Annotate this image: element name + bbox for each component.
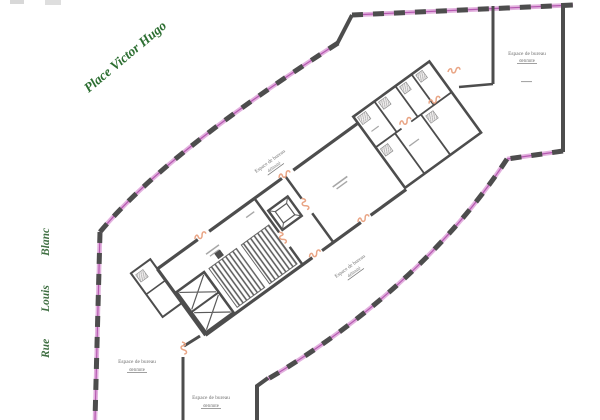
central-core bbox=[131, 58, 483, 350]
plain-walls bbox=[183, 3, 563, 420]
street-word-rue: Rue bbox=[40, 339, 52, 359]
column bbox=[214, 249, 224, 259]
wall-interior-topright-foot bbox=[459, 84, 493, 87]
door-opening-squiggles-global bbox=[179, 66, 460, 355]
sanitary-block bbox=[353, 61, 481, 187]
core-left-rooms bbox=[131, 259, 182, 317]
street-label-rue-louis-blanc: Rue Louis Blanc bbox=[40, 228, 52, 359]
office-label-bottom-left: Espace de bureau délimité bbox=[118, 359, 156, 373]
floorplan-svg: Place Victor Hugo Rue Louis Blanc bbox=[0, 0, 600, 420]
street-word-blanc: Blanc bbox=[40, 228, 52, 257]
office-label-bottom-center: Espace de bureau délimité bbox=[192, 395, 230, 409]
svg-text:Espace de bureau: Espace de bureau bbox=[118, 359, 156, 365]
street-word-louis: Louis bbox=[40, 285, 52, 313]
wall-office-left-jog bbox=[184, 336, 200, 346]
perimeter-hatched-walls bbox=[95, 5, 573, 420]
scan-artifact bbox=[10, 0, 61, 5]
wall-top-left-corner bbox=[337, 15, 352, 44]
office-label-top-right: Espace de bureau délimité bbox=[508, 51, 546, 82]
svg-text:Espace de bureau: Espace de bureau bbox=[192, 395, 230, 401]
floor-plan-page: Place Victor Hugo Rue Louis Blanc bbox=[0, 0, 600, 420]
office-label-lower-core: Espace de bureau délimité bbox=[334, 253, 371, 285]
svg-text:Espace de bureau: Espace de bureau bbox=[508, 51, 546, 57]
wall-bottom-corner bbox=[257, 378, 268, 420]
street-label-place-victor-hugo: Place Victor Hugo bbox=[81, 18, 170, 96]
core-partition-2 bbox=[285, 176, 333, 242]
